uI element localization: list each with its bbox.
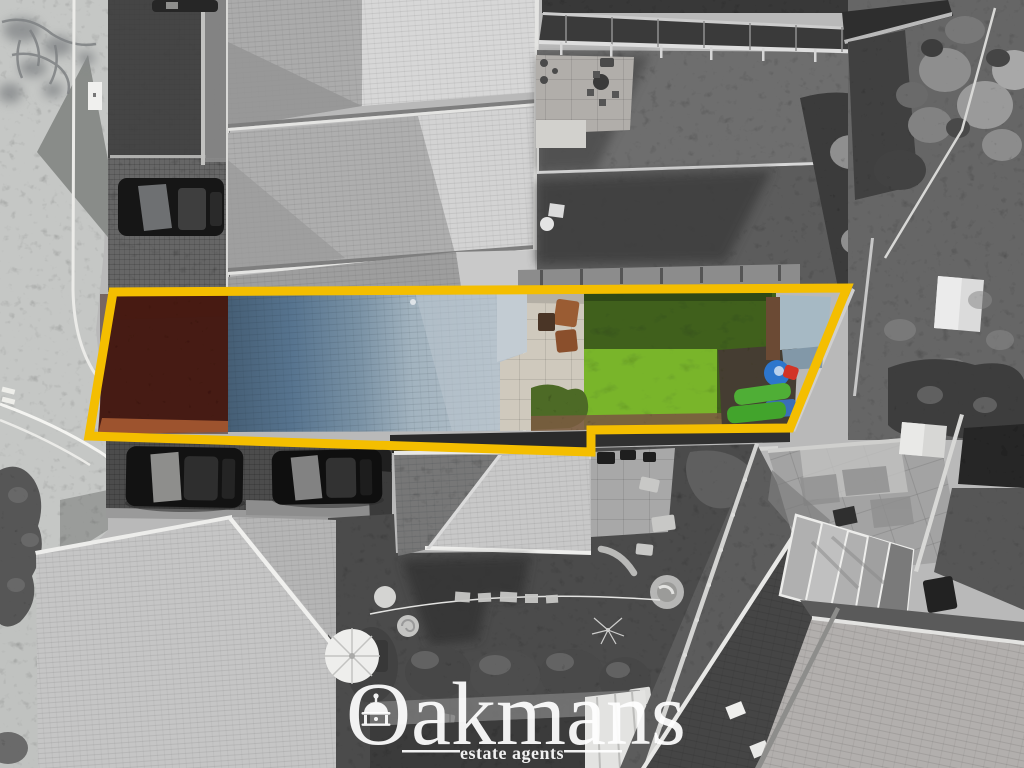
svg-text:estate agents: estate agents	[460, 743, 564, 763]
